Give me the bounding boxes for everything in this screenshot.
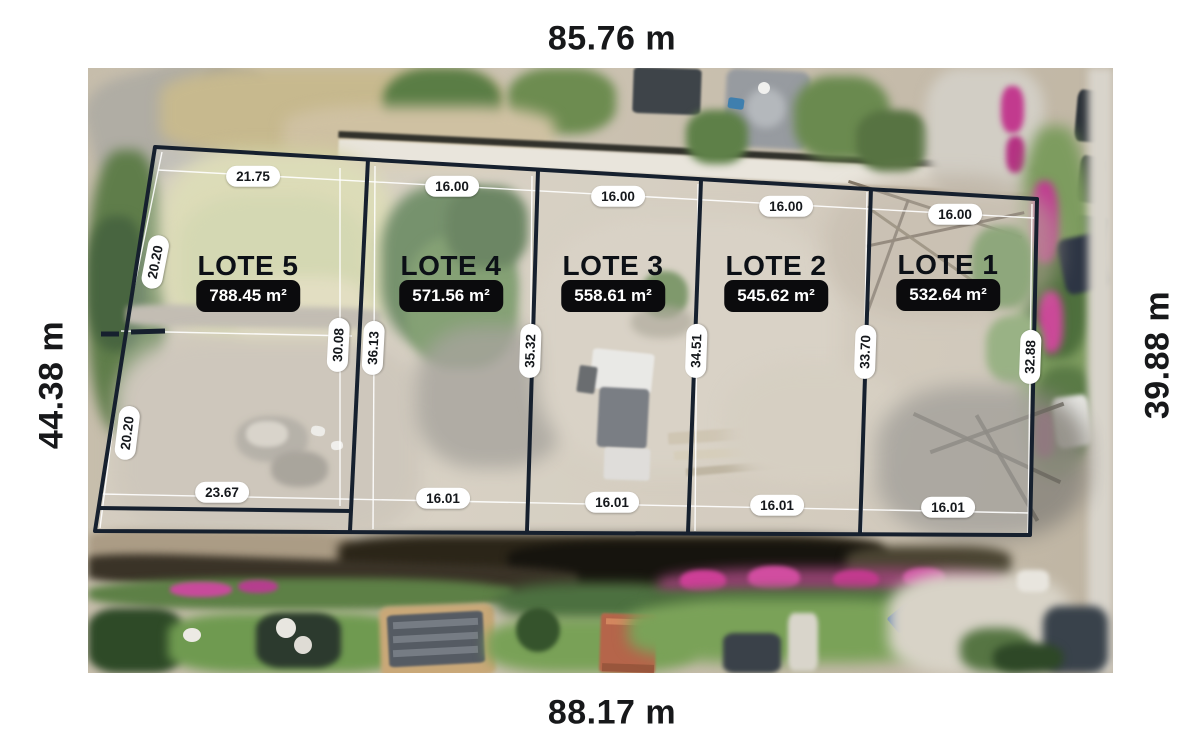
bottom-edge-measurement-lot1: 16.01: [921, 497, 975, 518]
depth-lot3-lot2: 34.51: [685, 324, 707, 378]
depth-lot5-right: 30.08: [326, 318, 349, 373]
lot2-area-badge: 545.62 m²: [724, 280, 828, 312]
top-edge-measurement-lot1: 16.00: [928, 204, 982, 225]
bottom-edge-measurement-lot3: 16.01: [585, 492, 639, 513]
photo-scenery-blob: [1017, 570, 1049, 592]
photo-scenery-blob: [516, 608, 560, 652]
lot1-area-badge: 532.64 m²: [896, 279, 1000, 311]
depth-lot2-lot1: 33.70: [854, 325, 876, 379]
photo-scenery-blob: [576, 365, 598, 394]
photo-scenery-blob: [596, 387, 649, 450]
photo-scenery-blob: [686, 110, 748, 164]
photo-scenery-blob: [758, 82, 770, 94]
lot4-area-badge: 571.56 m²: [399, 280, 503, 312]
photo-scenery-blob: [88, 216, 146, 351]
photo-scenery-blob: [788, 613, 818, 671]
depth-lot1-right: 32.88: [1019, 330, 1041, 384]
bottom-edge-measurement-lot5: 23.67: [195, 482, 249, 503]
lot1-name: LOTE 1: [897, 249, 998, 281]
photo-scenery-blob: [170, 582, 232, 597]
lot3-name: LOTE 3: [562, 250, 663, 282]
photo-scenery-blob: [276, 618, 296, 638]
aerial-photo: [88, 68, 1113, 673]
photo-scenery-blob: [1006, 136, 1025, 173]
bottom-edge-measurement-lot2: 16.01: [750, 495, 804, 516]
depth-lot4-left: 36.13: [361, 321, 384, 376]
top-edge-measurement-lot5: 21.75: [226, 166, 280, 187]
photo-scenery-blob: [1001, 86, 1024, 133]
photo-scenery-blob: [294, 636, 312, 654]
photo-scenery-blob: [723, 633, 781, 673]
photo-scenery-blob: [1088, 68, 1113, 673]
lot4-name: LOTE 4: [400, 250, 501, 282]
dimension-top: 85.76 m: [548, 20, 676, 59]
photo-scenery-blob: [727, 97, 744, 110]
dimension-bottom: 88.17 m: [548, 694, 676, 733]
dimension-left: 44.38 m: [33, 321, 72, 449]
photo-scenery-blob: [876, 386, 1088, 538]
lot5-area-badge: 788.45 m²: [196, 280, 300, 312]
photo-scenery-blob: [746, 88, 786, 128]
top-edge-measurement-lot3: 16.00: [591, 186, 645, 207]
photo-scenery-blob: [993, 643, 1063, 673]
dimension-right: 39.88 m: [1139, 291, 1178, 419]
photo-scenery-blob: [238, 580, 278, 593]
photo-scenery-blob: [632, 68, 702, 115]
photo-scenery-blob: [833, 570, 879, 590]
depth-lot4-lot3: 35.32: [519, 324, 541, 378]
photo-scenery-blob: [856, 110, 930, 172]
photo-scenery-blob: [183, 628, 201, 642]
lot5-name: LOTE 5: [197, 250, 298, 282]
lot2-name: LOTE 2: [725, 250, 826, 282]
photo-scenery-blob: [603, 447, 650, 481]
photo-scenery-blob: [748, 566, 800, 590]
photo-scenery-blob: [271, 451, 328, 487]
bottom-edge-measurement-lot4: 16.01: [416, 488, 470, 509]
lot3-area-badge: 558.61 m²: [561, 280, 665, 312]
lot-subdivision-plan: 85.76 m 88.17 m 44.38 m 39.88 m LOTE 1 5…: [0, 0, 1200, 744]
top-edge-measurement-lot4: 16.00: [425, 176, 479, 197]
top-edge-measurement-lot2: 16.00: [759, 196, 813, 217]
photo-scenery-blob: [246, 421, 288, 447]
